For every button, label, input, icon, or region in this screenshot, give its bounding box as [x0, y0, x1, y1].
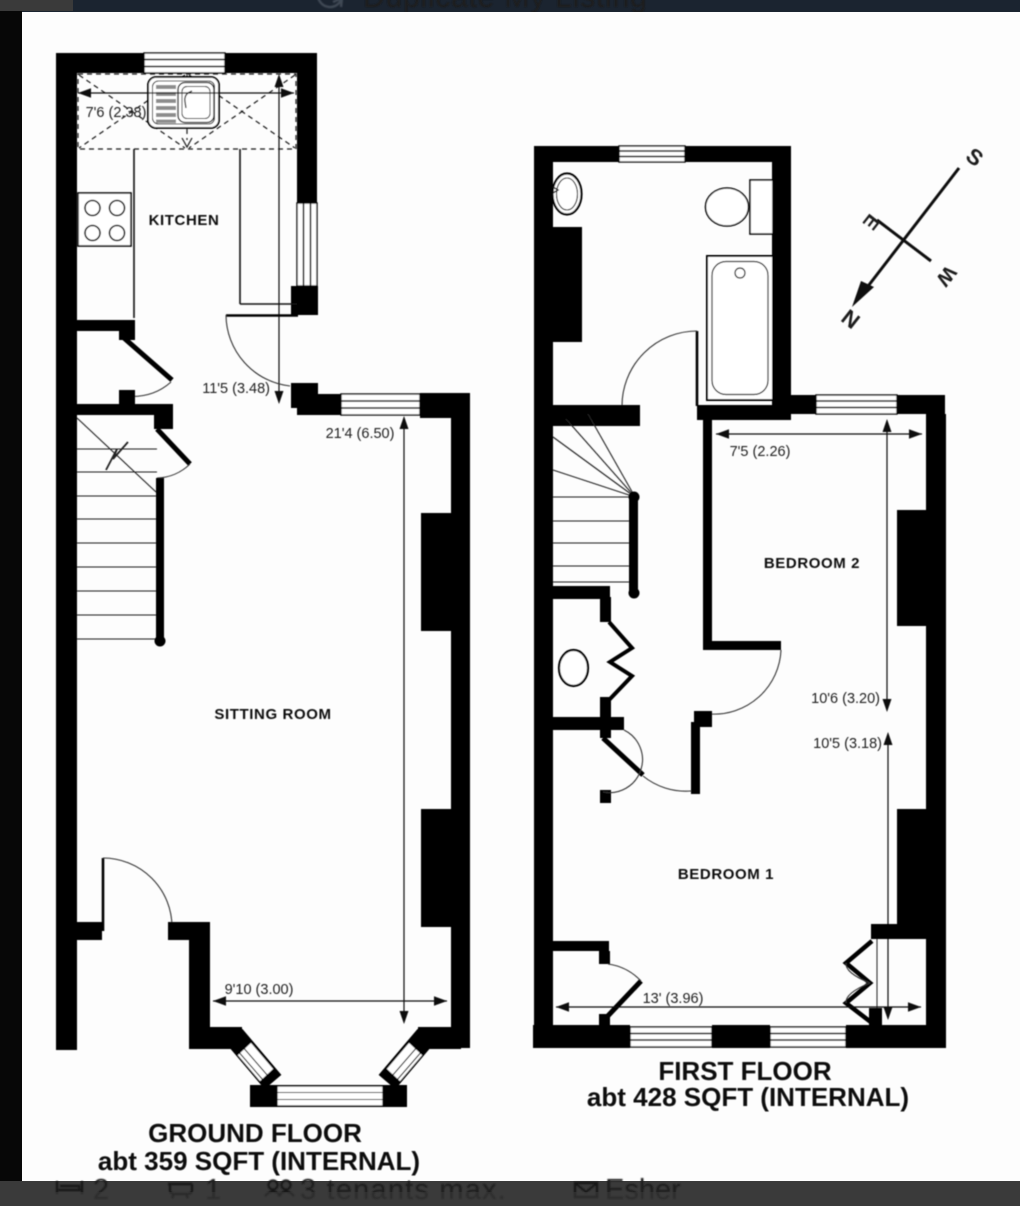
svg-text:abt 359 SQFT (INTERNAL): abt 359 SQFT (INTERNAL) [98, 1146, 420, 1176]
svg-text:SITTING ROOM: SITTING ROOM [214, 706, 331, 723]
svg-text:7'5 (2.26): 7'5 (2.26) [730, 444, 791, 460]
svg-text:abt 428 SQFT (INTERNAL): abt 428 SQFT (INTERNAL) [587, 1082, 909, 1112]
svg-text:BEDROOM 1: BEDROOM 1 [678, 866, 774, 883]
svg-text:21'4 (6.50): 21'4 (6.50) [326, 426, 395, 442]
svg-text:7'6 (2.38): 7'6 (2.38) [86, 105, 147, 121]
svg-text:13' (3.96): 13' (3.96) [643, 991, 704, 1007]
svg-text:GROUND FLOOR: GROUND FLOOR [148, 1118, 362, 1148]
svg-text:KITCHEN: KITCHEN [149, 212, 220, 229]
svg-text:9'10 (3.00): 9'10 (3.00) [225, 982, 294, 998]
svg-text:10'5 (3.18): 10'5 (3.18) [813, 736, 882, 752]
svg-text:Duplicate My Listing: Duplicate My Listing [363, 0, 647, 14]
svg-text:BEDROOM 2: BEDROOM 2 [764, 555, 860, 572]
svg-text:10'6 (3.20): 10'6 (3.20) [811, 691, 880, 707]
svg-text:11'5 (3.48): 11'5 (3.48) [202, 381, 270, 397]
